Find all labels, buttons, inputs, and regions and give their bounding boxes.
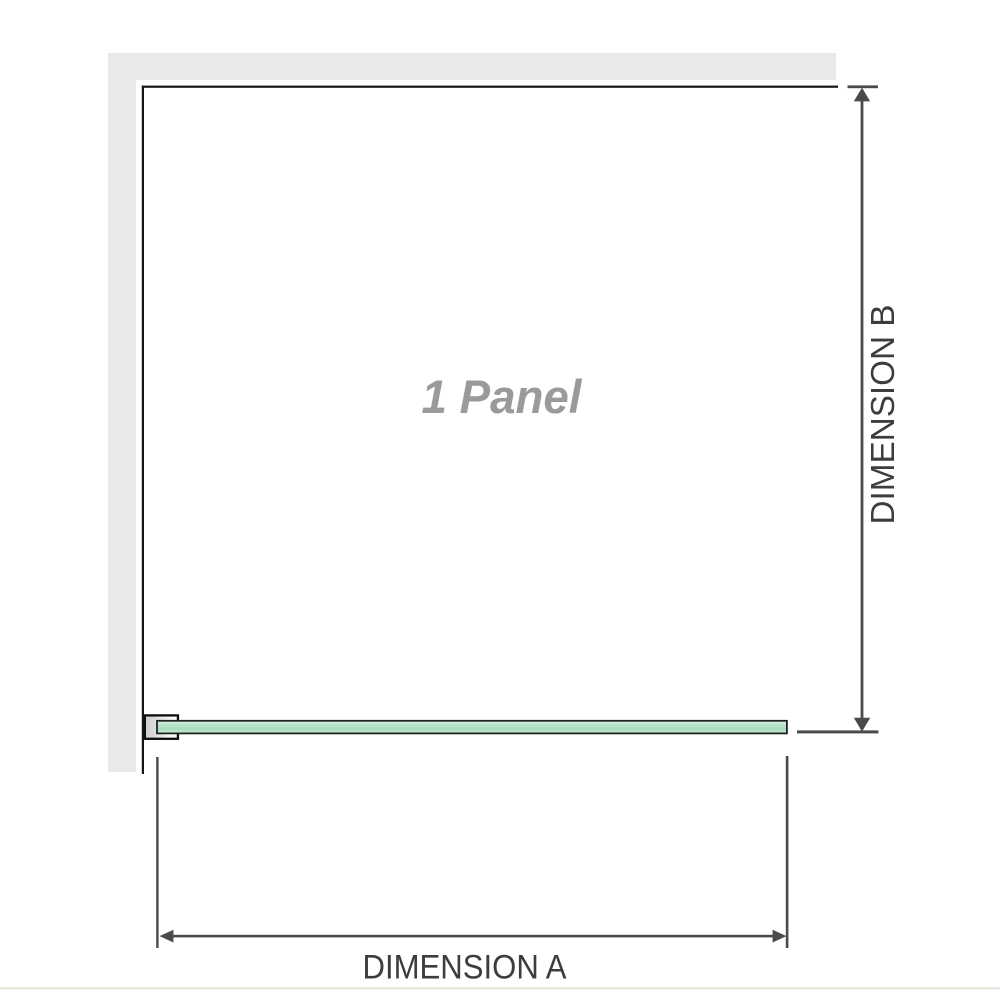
svg-text:DIMENSION A: DIMENSION A [363, 949, 567, 987]
svg-text:1 Panel: 1 Panel [422, 370, 583, 423]
svg-text:DIMENSION B: DIMENSION B [864, 305, 901, 525]
